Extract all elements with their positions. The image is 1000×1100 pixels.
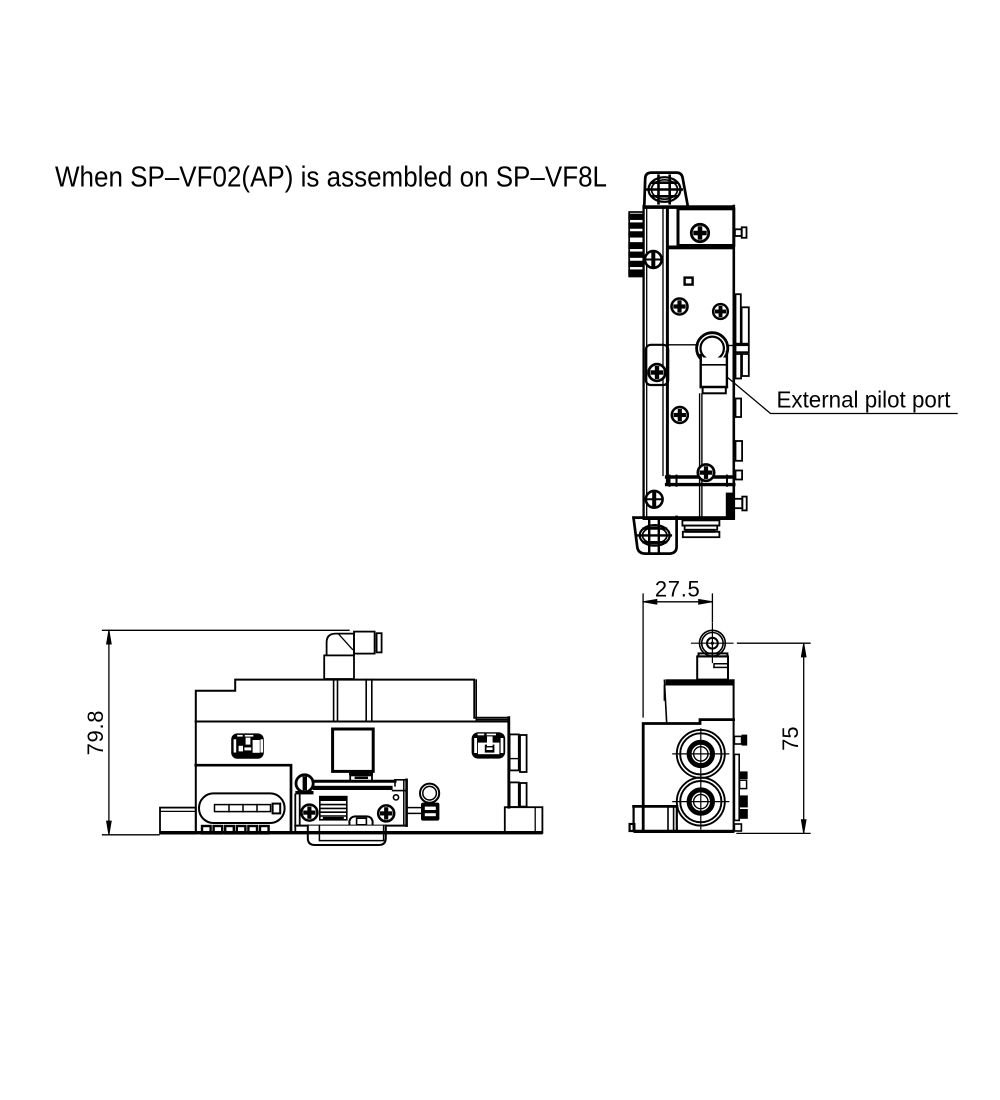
svg-text:External pilot port: External pilot port	[777, 386, 952, 412]
svg-text:75: 75	[778, 726, 803, 750]
svg-text:When SP–VF02(AP) is assembled: When SP–VF02(AP) is assembled on SP–VF8L	[55, 162, 607, 194]
svg-text:27.5: 27.5	[655, 576, 701, 601]
svg-text:79.8: 79.8	[83, 710, 108, 756]
